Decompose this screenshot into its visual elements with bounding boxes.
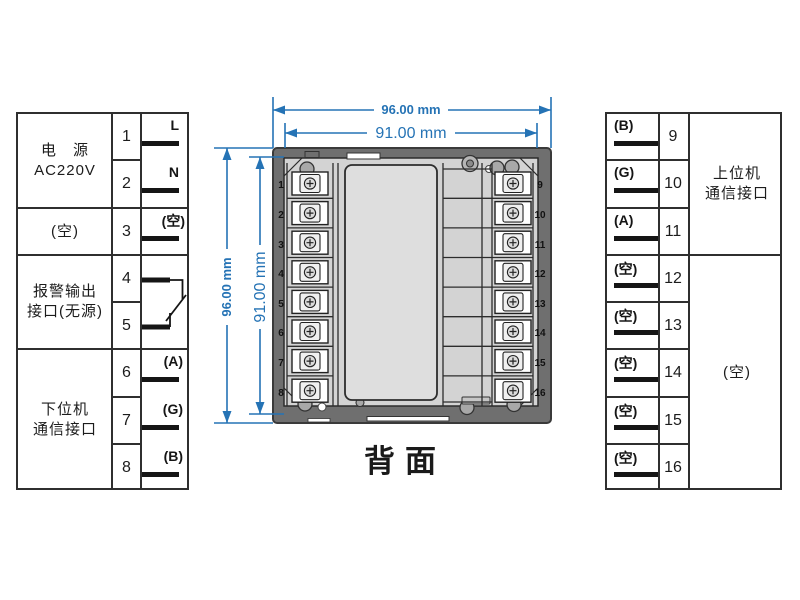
terminal-number: 2 xyxy=(113,161,140,207)
wire-symbol: (空) xyxy=(609,256,658,301)
wire-label: (A) xyxy=(164,353,183,369)
table-divider xyxy=(111,443,142,445)
label-line: 通信接口 xyxy=(705,184,769,204)
wire-symbol: (G) xyxy=(609,161,658,207)
terminal-cell xyxy=(495,290,531,313)
table-divider xyxy=(607,159,690,161)
wire-bar xyxy=(614,283,658,288)
label-line: 上位机 xyxy=(713,164,761,184)
terminal-number: 14 xyxy=(660,350,686,396)
mounting-tab xyxy=(462,397,490,404)
terminal-number: 1 xyxy=(113,114,140,159)
panel-terminal-number: 4 xyxy=(278,269,284,280)
terminal-cell xyxy=(292,202,328,225)
dim-width-outer: 96.00 mm xyxy=(381,102,440,117)
panel-terminal-number: 5 xyxy=(278,299,284,310)
terminal-cell xyxy=(292,320,328,343)
label-line: AC220V xyxy=(34,161,96,181)
panel-terminal-number: 7 xyxy=(278,358,284,369)
panel-terminal-number: 8 xyxy=(278,388,284,399)
terminal-cell xyxy=(495,350,531,373)
screw-icon xyxy=(467,160,474,167)
group-label-power: 电 源 AC220V xyxy=(20,114,110,207)
terminal-cell xyxy=(292,290,328,313)
panel-terminal-number: 10 xyxy=(534,210,546,221)
wire-bar xyxy=(614,425,658,430)
relay-contact-symbol xyxy=(142,256,189,348)
label-line: (空) xyxy=(723,363,751,383)
wire-label: (空) xyxy=(162,211,185,231)
terminal-number: 3 xyxy=(113,209,140,254)
dim-height-outer: 96.00 mm xyxy=(219,257,234,316)
wire-bar xyxy=(614,472,658,477)
panel-terminal-number: 2 xyxy=(278,210,284,221)
label-line: (空) xyxy=(51,222,79,242)
view-caption: 背面 xyxy=(300,436,500,481)
panel-terminal-number: 16 xyxy=(534,388,546,399)
wire-bar xyxy=(142,425,179,430)
terminal-number: 10 xyxy=(660,161,686,207)
wire-label: L xyxy=(170,117,179,133)
wire-bar xyxy=(142,377,179,382)
wire-symbol: (A) xyxy=(609,209,658,254)
group-label-upper-comm: 上位机 通信接口 xyxy=(692,114,782,254)
table-divider xyxy=(111,159,142,161)
table-divider xyxy=(607,254,780,256)
label-line: 接口(无源) xyxy=(27,302,103,322)
terminal-number: 7 xyxy=(113,398,140,443)
table-divider xyxy=(111,301,142,303)
terminal-number: 8 xyxy=(113,445,140,490)
wire-label: (G) xyxy=(163,401,183,417)
panel-terminal-number: 3 xyxy=(278,240,284,251)
wire-symbol: N xyxy=(142,161,189,207)
terminal-cell xyxy=(292,261,328,284)
vent-slot xyxy=(347,153,380,159)
left-terminal-table: 电 源 AC220V (空) 报警输出 接口(无源) 下位机 通信接口 1 2 … xyxy=(16,112,189,490)
table-divider xyxy=(607,348,690,350)
panel-terminal-number: 1 xyxy=(278,180,284,191)
panel-terminal-number: 11 xyxy=(535,240,546,251)
wire-label: (空) xyxy=(614,306,637,326)
terminal-number: 12 xyxy=(660,256,686,301)
table-divider xyxy=(111,396,142,398)
group-label-lower-comm: 下位机 通信接口 xyxy=(20,350,110,490)
wire-bar xyxy=(142,236,179,241)
terminal-number: 9 xyxy=(660,114,686,159)
group-label-empty: (空) xyxy=(692,256,782,490)
terminal-number: 6 xyxy=(113,350,140,396)
lock-washer-icon xyxy=(318,403,326,411)
label-line: 通信接口 xyxy=(33,420,97,440)
bottom-slot xyxy=(308,419,330,423)
wire-label: (空) xyxy=(614,448,637,468)
wire-label: (B) xyxy=(164,448,183,464)
terminal-number: 11 xyxy=(660,209,686,254)
terminal-cell xyxy=(495,320,531,343)
right-terminal-table: (B) (G) (A) (空) (空) (空) (空) (空) xyxy=(605,112,782,490)
device-rear-view: 1 2 3 4 5 6 7 8 9 10 11 12 13 14 15 16 9… xyxy=(200,85,600,495)
wire-symbol: (空) xyxy=(609,445,658,490)
table-divider xyxy=(607,301,690,303)
terminal-number: 16 xyxy=(660,445,686,490)
wire-label: N xyxy=(169,164,179,180)
panel-terminal-number: 6 xyxy=(278,328,284,339)
group-label-empty: (空) xyxy=(20,209,110,254)
wire-symbol: (G) xyxy=(142,398,189,443)
wire-bar xyxy=(614,141,658,146)
terminal-cell xyxy=(495,379,531,402)
group-label-alarm-output: 报警输出 接口(无源) xyxy=(20,256,110,348)
terminal-cell xyxy=(495,202,531,225)
wire-bar xyxy=(614,330,658,335)
terminal-cell xyxy=(495,172,531,195)
terminal-number: 13 xyxy=(660,303,686,348)
label-line: 电 源 xyxy=(41,141,89,161)
mounting-tab xyxy=(305,152,319,158)
wire-symbol: (空) xyxy=(142,209,189,254)
terminal-cell xyxy=(292,379,328,402)
wire-label: (A) xyxy=(614,212,633,228)
wire-symbol: (空) xyxy=(609,303,658,348)
wire-symbol: (B) xyxy=(609,114,658,159)
housing-projection xyxy=(345,165,437,400)
table-divider xyxy=(18,348,187,350)
terminal-cell xyxy=(292,350,328,373)
wire-label: (空) xyxy=(614,353,637,373)
table-divider xyxy=(18,207,187,209)
terminal-cell xyxy=(495,261,531,284)
wire-bar xyxy=(614,377,658,382)
wire-symbol: L xyxy=(142,114,189,159)
table-divider xyxy=(607,207,690,209)
panel-terminal-number: 15 xyxy=(534,358,546,369)
wire-bar xyxy=(614,188,658,193)
panel-terminal-number: 13 xyxy=(534,299,546,310)
table-divider xyxy=(607,443,690,445)
wire-label: (G) xyxy=(614,164,634,180)
terminal-cell xyxy=(292,231,328,254)
terminal-number: 4 xyxy=(113,256,140,301)
terminal-cell xyxy=(292,172,328,195)
wire-bar xyxy=(614,236,658,241)
wire-label: (空) xyxy=(614,259,637,279)
label-line: 报警输出 xyxy=(33,282,97,302)
wire-label: (B) xyxy=(614,117,633,133)
terminal-cell xyxy=(495,231,531,254)
wire-symbol: (A) xyxy=(142,350,189,396)
terminal-number: 5 xyxy=(113,303,140,348)
wire-symbol: (空) xyxy=(609,398,658,443)
dim-height-inner: 91.00 mm xyxy=(252,251,269,322)
dim-width-inner: 91.00 mm xyxy=(375,125,446,142)
bottom-slot xyxy=(367,417,449,422)
terminal-number: 15 xyxy=(660,398,686,443)
diagram-canvas: 电 源 AC220V (空) 报警输出 接口(无源) 下位机 通信接口 1 2 … xyxy=(0,0,800,600)
wire-bar xyxy=(142,472,179,477)
wire-bar xyxy=(142,141,179,146)
panel-terminal-number: 12 xyxy=(534,269,546,280)
label-line: 下位机 xyxy=(41,400,89,420)
wire-bar xyxy=(142,188,179,193)
panel-terminal-number: 9 xyxy=(537,180,543,191)
panel-terminal-number: 14 xyxy=(534,328,546,339)
wire-symbol: (B) xyxy=(142,445,189,490)
wire-symbol: (空) xyxy=(609,350,658,396)
table-divider xyxy=(18,254,187,256)
wire-label: (空) xyxy=(614,401,637,421)
table-divider xyxy=(607,396,690,398)
